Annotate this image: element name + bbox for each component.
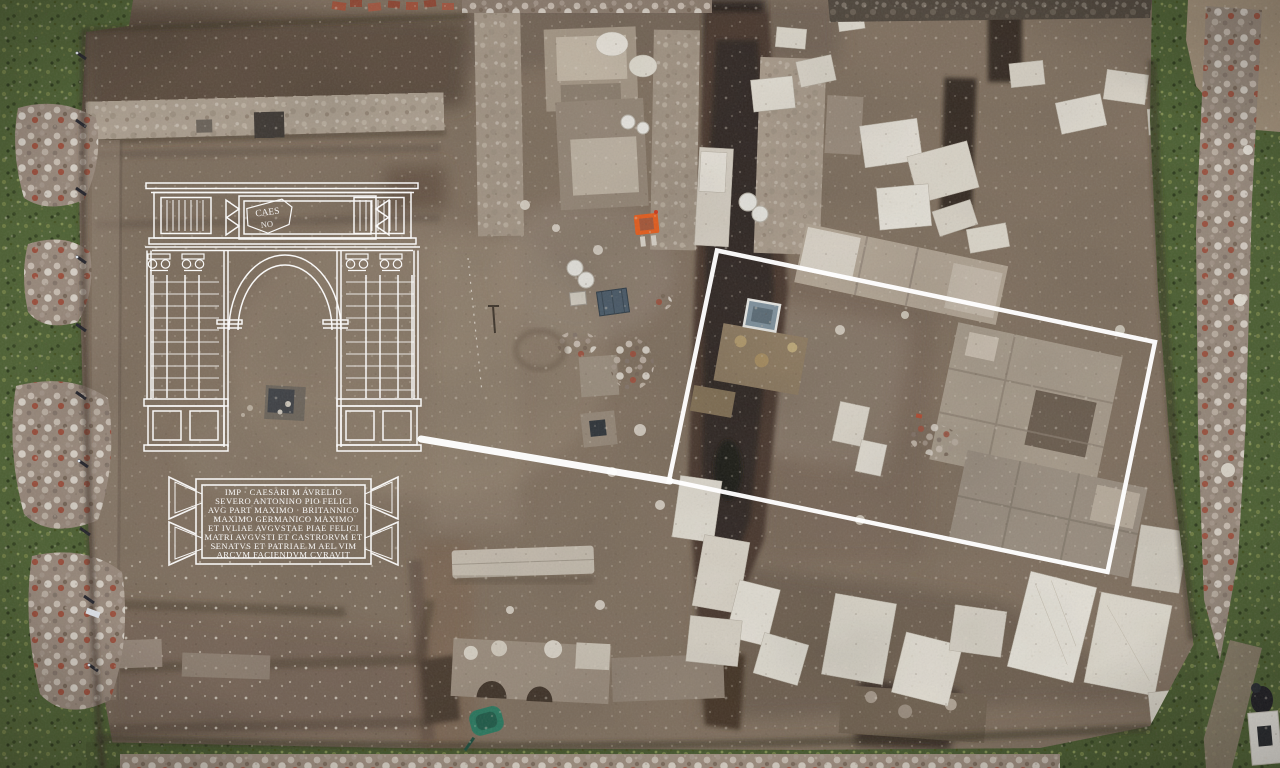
- inscription-text: IMP · CAESARI M AVRELIO SEVERO ANTONINO …: [204, 487, 362, 560]
- vignette: [0, 0, 1280, 768]
- aerial-photo: CAES NO IMP · CAESARI M AVRELIO SEVERO A…: [0, 0, 1280, 768]
- attic-fragment-line2: NO: [260, 218, 273, 229]
- inscription-line-8: ARCVM FACIENDVM CVRAVIT: [217, 550, 351, 560]
- excavation-scene: CAES NO IMP · CAESARI M AVRELIO SEVERO A…: [0, 0, 1280, 768]
